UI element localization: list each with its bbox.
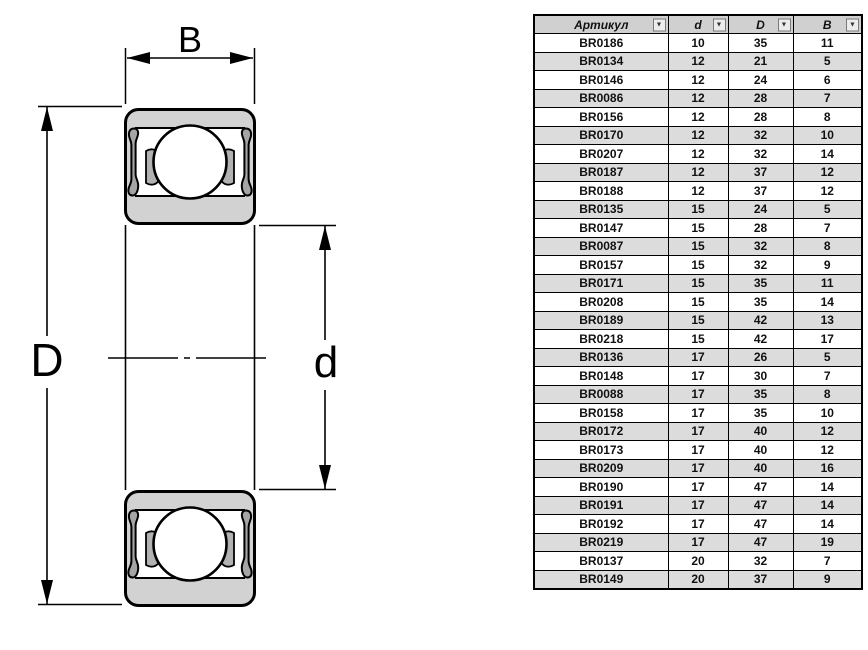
- value-cell: 9: [793, 256, 862, 275]
- article-cell: BR0147: [534, 219, 668, 238]
- value-cell: 17: [668, 459, 728, 478]
- article-cell: BR0086: [534, 89, 668, 108]
- value-cell: 32: [728, 552, 793, 571]
- value-cell: 12: [668, 108, 728, 127]
- value-cell: 15: [668, 274, 728, 293]
- value-cell: 42: [728, 330, 793, 349]
- value-cell: 9: [793, 570, 862, 589]
- value-cell: 12: [668, 182, 728, 201]
- article-cell: BR0149: [534, 570, 668, 589]
- column-header-article-label: Артикул: [574, 18, 628, 32]
- bearing-diagram: B D d: [0, 0, 520, 650]
- table-row: BR014920379: [534, 570, 862, 589]
- value-cell: 28: [728, 108, 793, 127]
- value-cell: 26: [728, 348, 793, 367]
- value-cell: 10: [793, 126, 862, 145]
- table-row: BR0170123210: [534, 126, 862, 145]
- filter-button-d[interactable]: ▼: [713, 18, 726, 31]
- value-cell: 32: [728, 126, 793, 145]
- value-cell: 12: [668, 163, 728, 182]
- value-cell: 17: [668, 422, 728, 441]
- value-cell: 15: [668, 256, 728, 275]
- bearing-section-top: [126, 110, 255, 224]
- value-cell: 15: [668, 330, 728, 349]
- table-row: BR013720327: [534, 552, 862, 571]
- table-row: BR0207123214: [534, 145, 862, 164]
- value-cell: 5: [793, 200, 862, 219]
- value-cell: 20: [668, 552, 728, 571]
- table-row: BR0158173510: [534, 404, 862, 423]
- value-cell: 7: [793, 552, 862, 571]
- value-cell: 5: [793, 348, 862, 367]
- article-cell: BR0172: [534, 422, 668, 441]
- article-cell: BR0088: [534, 385, 668, 404]
- column-header-d-label: d: [694, 18, 701, 32]
- value-cell: 12: [793, 441, 862, 460]
- table-row: BR0219174719: [534, 533, 862, 552]
- table-row: BR014715287: [534, 219, 862, 238]
- value-cell: 12: [793, 163, 862, 182]
- value-cell: 16: [793, 459, 862, 478]
- value-cell: 15: [668, 237, 728, 256]
- parts-table-body: BR0186103511BR013412215BR014612246BR0086…: [534, 34, 862, 589]
- value-cell: 12: [668, 126, 728, 145]
- article-cell: BR0187: [534, 163, 668, 182]
- table-row: BR0186103511: [534, 34, 862, 53]
- value-cell: 35: [728, 293, 793, 312]
- table-row: BR0189154213: [534, 311, 862, 330]
- article-cell: BR0209: [534, 459, 668, 478]
- value-cell: 24: [728, 71, 793, 90]
- value-cell: 37: [728, 570, 793, 589]
- table-row: BR015715329: [534, 256, 862, 275]
- value-cell: 14: [793, 496, 862, 515]
- article-cell: BR0137: [534, 552, 668, 571]
- table-row: BR0190174714: [534, 478, 862, 497]
- value-cell: 17: [668, 533, 728, 552]
- table-row: BR0172174012: [534, 422, 862, 441]
- column-header-d: d ▼: [668, 15, 728, 34]
- article-cell: BR0158: [534, 404, 668, 423]
- article-cell: BR0186: [534, 34, 668, 53]
- value-cell: 17: [668, 515, 728, 534]
- value-cell: 13: [793, 311, 862, 330]
- column-header-D-label: D: [756, 18, 765, 32]
- value-cell: 14: [793, 515, 862, 534]
- parts-table-container: Артикул ▼ d ▼ D ▼: [533, 14, 861, 590]
- value-cell: 12: [668, 71, 728, 90]
- parts-table: Артикул ▼ d ▼ D ▼: [533, 14, 863, 590]
- article-cell: BR0134: [534, 52, 668, 71]
- article-cell: BR0190: [534, 478, 668, 497]
- value-cell: 7: [793, 367, 862, 386]
- value-cell: 14: [793, 293, 862, 312]
- filter-button-article[interactable]: ▼: [653, 18, 666, 31]
- value-cell: 12: [793, 422, 862, 441]
- value-cell: 32: [728, 145, 793, 164]
- value-cell: 35: [728, 385, 793, 404]
- value-cell: 10: [793, 404, 862, 423]
- dim-label-D: D: [30, 334, 63, 386]
- value-cell: 17: [668, 478, 728, 497]
- article-cell: BR0218: [534, 330, 668, 349]
- table-row: BR0191174714: [534, 496, 862, 515]
- article-cell: BR0188: [534, 182, 668, 201]
- b-arrow-left: [127, 52, 150, 64]
- value-cell: 37: [728, 182, 793, 201]
- value-cell: 14: [793, 478, 862, 497]
- chevron-down-icon: ▼: [849, 21, 856, 28]
- article-cell: BR0219: [534, 533, 668, 552]
- table-row: BR0171153511: [534, 274, 862, 293]
- b-arrow-right: [230, 52, 253, 64]
- table-row: BR015612288: [534, 108, 862, 127]
- article-cell: BR0208: [534, 293, 668, 312]
- dim-label-B: B: [178, 19, 202, 60]
- column-header-D: D ▼: [728, 15, 793, 34]
- value-cell: 35: [728, 404, 793, 423]
- value-cell: 28: [728, 89, 793, 108]
- value-cell: 10: [668, 34, 728, 53]
- table-row: BR0192174714: [534, 515, 862, 534]
- value-cell: 14: [793, 145, 862, 164]
- value-cell: 20: [668, 570, 728, 589]
- value-cell: 17: [668, 385, 728, 404]
- value-cell: 8: [793, 237, 862, 256]
- column-header-B: B ▼: [793, 15, 862, 34]
- value-cell: 8: [793, 385, 862, 404]
- d-outer-arrow-down: [41, 580, 53, 604]
- table-row: BR008715328: [534, 237, 862, 256]
- value-cell: 40: [728, 441, 793, 460]
- chevron-down-icon: ▼: [716, 21, 723, 28]
- value-cell: 17: [668, 348, 728, 367]
- table-row: BR013412215: [534, 52, 862, 71]
- value-cell: 47: [728, 496, 793, 515]
- article-cell: BR0135: [534, 200, 668, 219]
- article-cell: BR0156: [534, 108, 668, 127]
- table-row: BR008817358: [534, 385, 862, 404]
- value-cell: 30: [728, 367, 793, 386]
- value-cell: 17: [668, 404, 728, 423]
- value-cell: 7: [793, 219, 862, 238]
- article-cell: BR0191: [534, 496, 668, 515]
- value-cell: 17: [793, 330, 862, 349]
- article-cell: BR0157: [534, 256, 668, 275]
- value-cell: 35: [728, 274, 793, 293]
- chevron-down-icon: ▼: [781, 21, 788, 28]
- value-cell: 5: [793, 52, 862, 71]
- table-row: BR0209174016: [534, 459, 862, 478]
- value-cell: 35: [728, 34, 793, 53]
- article-cell: BR0171: [534, 274, 668, 293]
- value-cell: 17: [668, 441, 728, 460]
- value-cell: 12: [668, 89, 728, 108]
- article-cell: BR0192: [534, 515, 668, 534]
- value-cell: 47: [728, 515, 793, 534]
- article-cell: BR0148: [534, 367, 668, 386]
- value-cell: 21: [728, 52, 793, 71]
- bearing-drawing-svg: B D d: [0, 0, 520, 650]
- value-cell: 17: [668, 496, 728, 515]
- table-row: BR013515245: [534, 200, 862, 219]
- value-cell: 19: [793, 533, 862, 552]
- d-outer-arrow-up: [41, 107, 53, 131]
- article-cell: BR0087: [534, 237, 668, 256]
- page: B D d: [0, 0, 868, 650]
- filter-button-D[interactable]: ▼: [778, 18, 791, 31]
- table-row: BR013617265: [534, 348, 862, 367]
- value-cell: 15: [668, 219, 728, 238]
- value-cell: 40: [728, 459, 793, 478]
- value-cell: 12: [793, 182, 862, 201]
- value-cell: 32: [728, 237, 793, 256]
- value-cell: 7: [793, 89, 862, 108]
- value-cell: 11: [793, 274, 862, 293]
- column-header-B-label: B: [823, 18, 832, 32]
- table-row: BR014612246: [534, 71, 862, 90]
- value-cell: 15: [668, 200, 728, 219]
- d-bore-arrow-down: [319, 465, 331, 489]
- d-bore-arrow-up: [319, 226, 331, 250]
- dim-label-d: d: [314, 338, 338, 387]
- value-cell: 42: [728, 311, 793, 330]
- table-row: BR0173174012: [534, 441, 862, 460]
- value-cell: 12: [668, 52, 728, 71]
- table-row: BR0187123712: [534, 163, 862, 182]
- value-cell: 24: [728, 200, 793, 219]
- article-cell: BR0170: [534, 126, 668, 145]
- value-cell: 6: [793, 71, 862, 90]
- table-row: BR0208153514: [534, 293, 862, 312]
- value-cell: 40: [728, 422, 793, 441]
- article-cell: BR0207: [534, 145, 668, 164]
- article-cell: BR0189: [534, 311, 668, 330]
- value-cell: 47: [728, 478, 793, 497]
- value-cell: 17: [668, 367, 728, 386]
- value-cell: 12: [668, 145, 728, 164]
- table-row: BR014817307: [534, 367, 862, 386]
- chevron-down-icon: ▼: [656, 21, 663, 28]
- value-cell: 37: [728, 163, 793, 182]
- table-row: BR008612287: [534, 89, 862, 108]
- value-cell: 15: [668, 293, 728, 312]
- value-cell: 8: [793, 108, 862, 127]
- article-cell: BR0146: [534, 71, 668, 90]
- article-cell: BR0136: [534, 348, 668, 367]
- value-cell: 15: [668, 311, 728, 330]
- value-cell: 47: [728, 533, 793, 552]
- value-cell: 28: [728, 219, 793, 238]
- value-cell: 32: [728, 256, 793, 275]
- article-cell: BR0173: [534, 441, 668, 460]
- table-row: BR0218154217: [534, 330, 862, 349]
- column-header-article: Артикул ▼: [534, 15, 668, 34]
- value-cell: 11: [793, 34, 862, 53]
- bearing-section-bottom: [126, 492, 255, 606]
- table-row: BR0188123712: [534, 182, 862, 201]
- table-header-row: Артикул ▼ d ▼ D ▼: [534, 15, 862, 34]
- filter-button-B[interactable]: ▼: [846, 18, 859, 31]
